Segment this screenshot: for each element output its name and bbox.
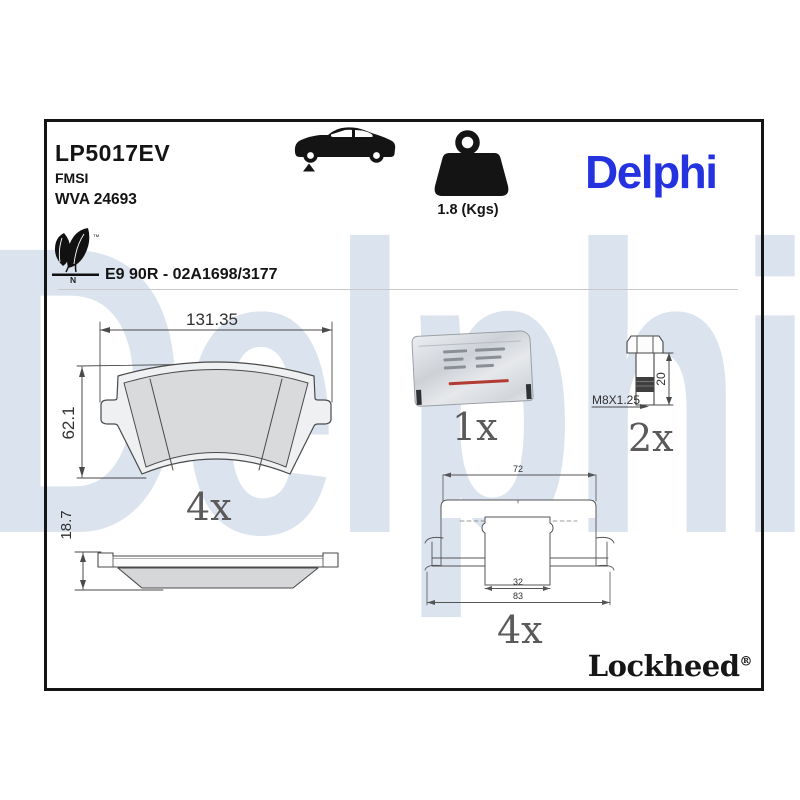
sachet-warning-line [449,379,509,385]
bolt-thread-spec-label: M8X1.25 [592,393,640,407]
dim-arrow [322,327,332,333]
part-number: LP5017EV [55,140,170,167]
weight-icon [429,120,513,200]
sachet-fold-line [419,340,521,346]
sachet-text-line [443,349,467,353]
dim-arrow [666,353,672,361]
clip-center-block [482,517,553,585]
grease-sachet [411,330,534,407]
car-rear-window [355,130,373,137]
dim-arrow [80,553,86,562]
leaf-n-mark: N [70,275,76,284]
wva-number: WVA 24693 [55,191,137,209]
dim-arrow [588,473,596,478]
lockheed-wordmark: Lockheed [588,649,740,683]
sachet-text-line [475,347,505,351]
delphi-logo: Delphi [585,145,717,199]
dim-arrow [100,327,110,333]
pad-height-dim-label: 62.1 [60,406,78,439]
clip-outer-dim-label: 72 [513,464,523,474]
bolt-drawing: 20 M8X1.25 [585,328,685,420]
bolt-head [627,336,663,353]
car-rear-wheel-hub [373,152,380,159]
pad-thickness-dim-label: 18.7 [58,510,75,539]
car-icon [292,124,400,176]
car-front-wheel-hub [307,152,314,159]
bolt-thread-band [637,377,654,392]
side-backplate [98,553,338,567]
dim-arrow [79,367,85,377]
approval-number: E9 90R - 02A1698/3177 [105,266,278,284]
clip-left-top-hook [425,537,443,543]
sachet-text-line [444,365,466,369]
dim-arrow [602,600,610,605]
dim-arrow [666,397,672,405]
clip-inner-dim-label: 32 [513,577,523,587]
separator-line [58,289,738,290]
sachet-seal-left [416,390,422,405]
dim-arrow [485,586,492,591]
side-friction-material [118,568,318,588]
fmsi-label: FMSI [55,170,88,186]
clip-quantity: 4x [497,611,543,649]
weight-value: 1.8 (Kgs) [420,202,516,218]
clip-total-dim-label: 83 [513,591,523,601]
clip-top-plate [441,500,596,518]
leaf-tm-mark: ™ [93,234,100,241]
weight-body [435,153,509,196]
axle-marker-triangle [303,164,315,172]
weight-ring [459,134,477,152]
dim-arrow [427,600,435,605]
dim-arrow [443,473,451,478]
bolt-length-dim-label: 20 [654,372,668,386]
sachet-text-line [475,355,501,359]
dim-arrow [543,586,550,591]
bolt-quantity: 2x [628,419,674,457]
dim-arrow [79,467,85,477]
sachet-quantity: 1x [452,408,498,446]
registered-mark: ® [740,654,753,669]
eco-leaf-icon: ™ N [50,226,105,284]
lockheed-logo: Lockheed® [552,649,752,683]
clip-right-top-hook [596,537,614,543]
pad-width-dim-label: 131.35 [186,310,238,329]
pad-side-drawing: 18.7 [55,505,350,600]
fitting-clip-drawing: 72 32 83 [420,460,620,610]
sachet-text-line [443,357,463,361]
sachet-seal-right [526,384,532,399]
sachet-text-line [476,364,494,367]
dim-arrow [80,580,86,589]
